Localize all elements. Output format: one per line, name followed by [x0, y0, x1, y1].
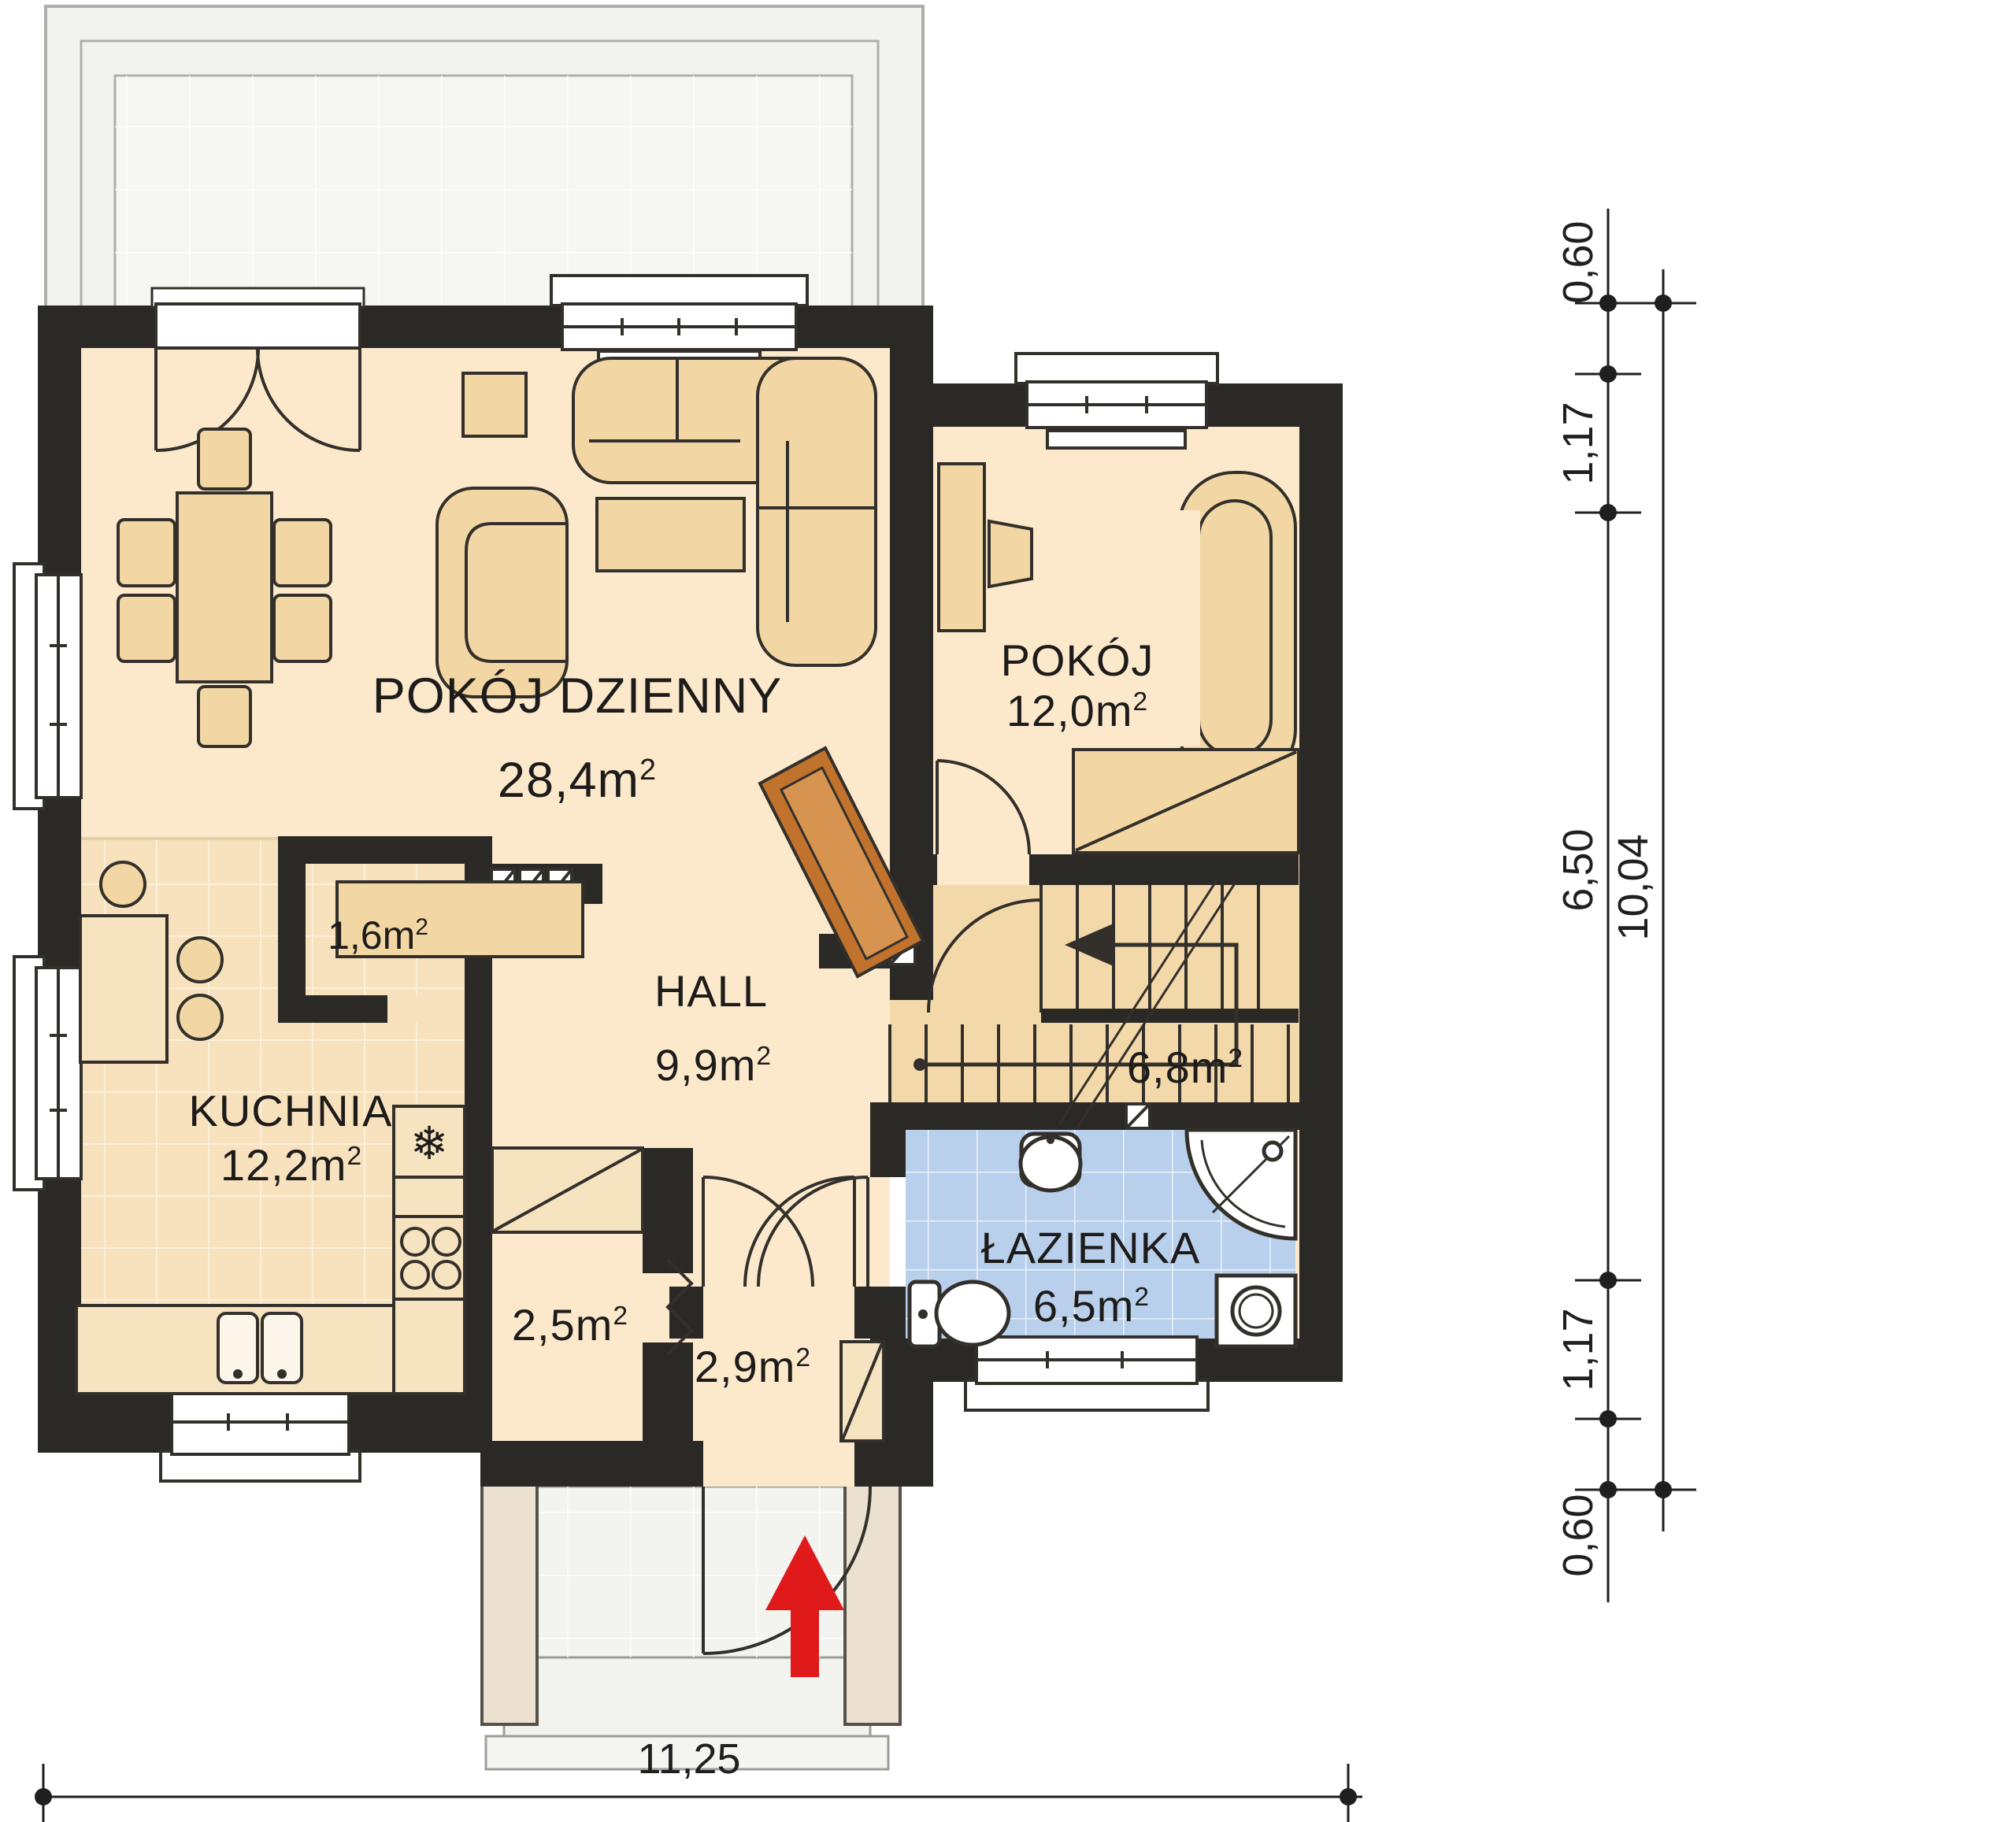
label-stairs-area: 6,8m2	[1127, 1042, 1243, 1092]
label-hall-name: HALL	[654, 966, 768, 1016]
label-living-name: POKÓJ DZIENNY	[372, 668, 783, 724]
dim-v-total: 10,04	[1610, 834, 1657, 940]
label-pantry-area: 1,6m2	[328, 913, 428, 957]
window-kitchen-left	[14, 957, 81, 1190]
entrance-porch	[482, 1453, 900, 1769]
vestibule-wardrobe	[841, 1342, 884, 1441]
label-closet-area: 2,5m2	[512, 1300, 628, 1350]
dining-chair	[198, 429, 250, 489]
window-bedroom-top	[1016, 354, 1217, 428]
window-living-left	[14, 564, 81, 809]
label-bedroom-area: 12,0m2	[1006, 686, 1148, 735]
kitchen-counter-left	[80, 916, 167, 1062]
dim-v-4: 0,60	[1555, 1494, 1602, 1576]
dim-v-0: 0,60	[1555, 220, 1602, 303]
dim-h-total: 11,25	[637, 1735, 740, 1783]
window-bathroom-bottom	[965, 1337, 1208, 1410]
lounge-chair	[1177, 472, 1295, 784]
kitchen-stool	[101, 862, 145, 906]
bed	[1073, 750, 1299, 853]
label-kitchen-area: 12,2m2	[220, 1140, 362, 1190]
label-vestibule-area: 2,9m2	[695, 1342, 811, 1391]
dim-v-3: 1,17	[1555, 1308, 1602, 1391]
dim-v-2: 6,50	[1555, 828, 1602, 911]
dining-chair	[274, 595, 331, 661]
fridge: ❄	[394, 1106, 465, 1177]
dining-chair	[118, 520, 175, 586]
label-hall-area: 9,9m2	[655, 1040, 772, 1090]
closet-wardrobe	[492, 1148, 643, 1232]
kitchen-stool	[178, 938, 222, 982]
coffee-table	[597, 498, 744, 571]
label-kitchen-name: KUCHNIA	[188, 1086, 392, 1135]
stove	[394, 1217, 465, 1299]
dining-chair	[118, 595, 175, 661]
label-bathroom-name: ŁAZIENKA	[981, 1223, 1201, 1272]
dining-chair	[274, 520, 331, 586]
window-kitchen-bottom	[161, 1392, 360, 1481]
label-bathroom-area: 6,5m2	[1033, 1281, 1150, 1331]
floor-plan-drawing: ❄	[0, 0, 2016, 1822]
window-living-top	[551, 276, 807, 350]
desk-chair	[989, 521, 1032, 587]
radiator-bedroom	[1047, 431, 1185, 448]
dining-chair	[198, 687, 250, 746]
washing-machine	[1217, 1276, 1295, 1346]
porch-pillar-right	[845, 1453, 900, 1724]
bathroom-sink	[1021, 1134, 1080, 1191]
armchair	[437, 488, 567, 697]
label-living-area: 28,4m2	[498, 753, 657, 808]
kitchen-stool	[178, 995, 222, 1039]
dim-v-1: 1,17	[1555, 402, 1602, 484]
side-table	[463, 373, 526, 436]
toilet	[910, 1282, 1009, 1346]
label-bedroom-name: POKÓJ	[1001, 635, 1154, 685]
snowflake-icon: ❄	[410, 1118, 449, 1169]
floor-plan-page: ❄	[0, 0, 2016, 1822]
desk	[939, 464, 984, 631]
terrace	[46, 6, 923, 307]
porch-pillar-left	[482, 1453, 537, 1724]
dining-table	[177, 493, 272, 682]
